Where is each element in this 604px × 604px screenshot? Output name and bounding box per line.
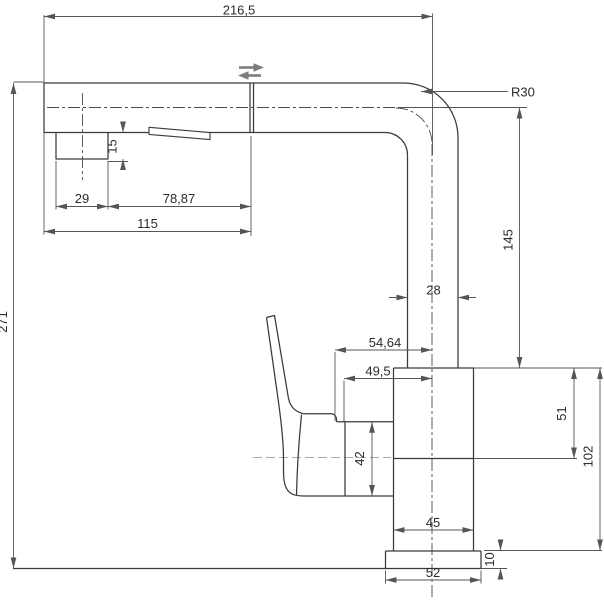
dim-label: 102 — [581, 446, 596, 468]
dim-label: 115 — [137, 216, 158, 231]
dim-label: 145 — [501, 229, 516, 251]
dim-body-height: 102 — [484, 368, 602, 551]
right-arrow-head — [254, 63, 265, 72]
dim-label: 29 — [75, 191, 89, 206]
dim-label: 15 — [105, 139, 120, 153]
extension-lines — [44, 14, 433, 156]
dim-label: 78,87 — [163, 191, 196, 206]
dim-spout-reach: 115 — [44, 133, 251, 235]
bend-centerline-arc — [396, 108, 432, 144]
dim-label: 216,5 — [223, 3, 256, 18]
left-arrow-head — [238, 71, 249, 80]
extension-lines — [474, 368, 603, 459]
dim-label: R30 — [511, 85, 535, 100]
dim-base-width: 52 — [386, 565, 482, 584]
dim-aerator-depth: 15 — [105, 125, 129, 168]
body-and-base-outline — [386, 368, 482, 569]
handle-lever-front-edge — [267, 316, 337, 422]
dim-label: 51 — [554, 406, 569, 420]
drawing-canvas: 216,5 R30 271 15 29 78,87 115 145 28 — [0, 0, 604, 604]
dim-label: 10 — [482, 552, 497, 566]
dim-body-upper-height: 51 — [474, 368, 603, 459]
dim-label: 49,5 — [365, 364, 390, 379]
handle-lever-back-edge — [267, 318, 346, 497]
dim-label: 28 — [426, 283, 440, 298]
dim-label: 54,64 — [369, 335, 402, 350]
dim-riser-width: 28 — [389, 283, 476, 298]
spout-inner-profile — [44, 133, 408, 369]
dim-bend-radius: R30 — [421, 85, 535, 100]
dim-spout-mid-section: 78,87 — [108, 136, 251, 236]
dim-riser-height: 145 — [501, 108, 520, 369]
dim-base-height: 10 — [481, 543, 507, 576]
pull-out-arrows-icon — [238, 63, 264, 80]
dim-aerator-offset: 29 — [56, 161, 108, 210]
dim-body-width: 45 — [394, 515, 474, 530]
dim-label: 271 — [0, 311, 10, 333]
dim-label: 45 — [426, 515, 440, 530]
dim-handle-base-offset: 49,5 — [344, 364, 432, 422]
spray-head-grip — [149, 127, 210, 139]
dim-label: 52 — [426, 565, 440, 580]
faucet-outline — [13, 83, 481, 569]
dim-overall-height: 271 — [0, 82, 44, 569]
aerator-outline — [56, 133, 108, 160]
handle-bell-curve — [297, 415, 302, 496]
faucet-technical-drawing: 216,5 R30 271 15 29 78,87 115 145 28 — [0, 0, 604, 604]
centerlines — [47, 93, 527, 598]
dim-handle-mount-height: 42 — [352, 422, 372, 496]
dim-label: 42 — [352, 451, 367, 465]
